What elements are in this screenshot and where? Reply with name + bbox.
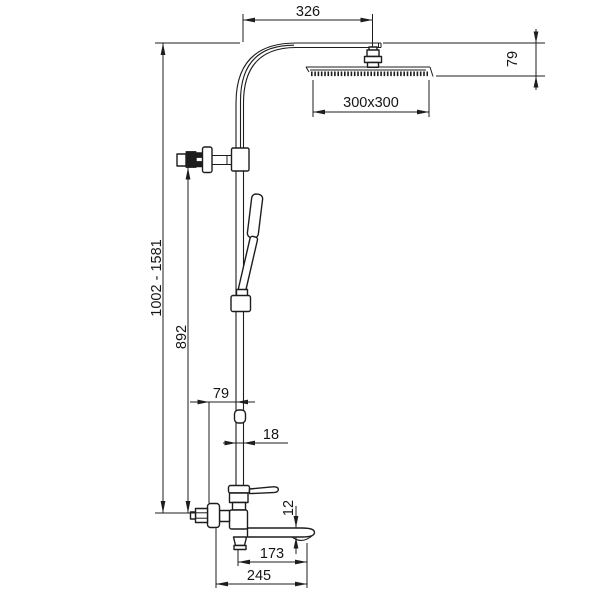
riser-sleeve-joint xyxy=(235,410,246,423)
dim-label-riser-diameter: 18 xyxy=(263,427,279,443)
dim-label-spout-thickness: 12 xyxy=(281,500,297,516)
dim-label-wall-to-riser: 79 xyxy=(213,386,229,402)
dimension-riser-diameter: 18 xyxy=(223,427,288,445)
overhead-shower-head xyxy=(306,67,433,77)
dim-label-arm-projection: 326 xyxy=(296,4,320,20)
dimension-head-height: 79 xyxy=(383,29,545,90)
dimension-arm-projection: 326 xyxy=(243,4,373,47)
spout-outlet xyxy=(234,537,247,546)
dimension-head-size: 300x300 xyxy=(313,80,429,117)
hand-shower xyxy=(237,193,264,296)
dim-label-spout-projection: 173 xyxy=(260,546,284,562)
dim-label-total-height: 1002 - 1581 xyxy=(149,239,165,316)
head-connector xyxy=(365,47,382,67)
technical-drawing-page: 326 79 300x300 1002 - 1581 892 xyxy=(0,0,600,600)
dim-label-max-projection: 245 xyxy=(247,568,271,584)
mixer-lever-handle xyxy=(250,487,279,494)
shower-fixture xyxy=(177,43,433,550)
dim-label-head-height: 79 xyxy=(505,51,521,67)
dim-label-riser-height: 892 xyxy=(174,325,190,349)
hand-shower-holder xyxy=(231,296,251,312)
lower-wall-union xyxy=(191,504,230,528)
dim-label-head-size: 300x300 xyxy=(343,95,399,111)
shower-system-technical-drawing: 326 79 300x300 1002 - 1581 892 xyxy=(0,0,600,600)
dimension-riser-height: 892 xyxy=(174,168,190,514)
mixer-valve xyxy=(229,486,279,530)
